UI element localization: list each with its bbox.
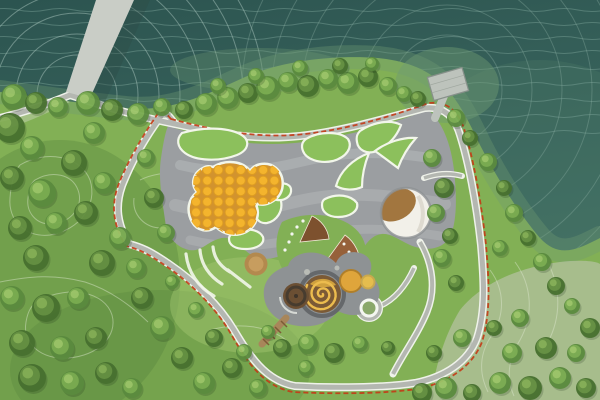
playground-dot: [225, 197, 234, 206]
playground-dot: [203, 176, 212, 185]
playground-dot: [236, 166, 245, 175]
playground-dot: [236, 197, 245, 206]
playground-dot: [259, 187, 268, 196]
playground-dot: [248, 208, 257, 217]
playground-dot: [203, 197, 212, 206]
planting-island: [178, 129, 247, 160]
playground-dot: [214, 208, 223, 217]
playground-dot: [236, 187, 245, 196]
ring-play-circle: [361, 300, 377, 316]
playground-dot: [225, 208, 234, 217]
playground-dot: [248, 176, 257, 185]
playground-dot: [203, 208, 212, 217]
playground-dot: [259, 166, 268, 175]
playground-dot: [236, 176, 245, 185]
playground-dot: [214, 197, 223, 206]
playground-dot: [203, 219, 212, 228]
playground-dot: [236, 219, 245, 228]
playground-dot: [225, 219, 234, 228]
playground-dot: [259, 176, 268, 185]
playground-dot: [248, 197, 257, 206]
play-circle: [340, 270, 362, 292]
playground-dot: [214, 187, 223, 196]
playground-dot: [192, 197, 201, 206]
playground-dot: [225, 166, 234, 175]
small-play-dot: [335, 266, 340, 271]
play-circle: [362, 276, 375, 289]
tan-play-circle-inner: [249, 257, 264, 272]
donut-center: [294, 294, 298, 298]
playground-dot: [270, 176, 279, 185]
playground-dot: [225, 187, 234, 196]
playground-dot: [203, 187, 212, 196]
playground-dot: [214, 219, 223, 228]
site-plan-canvas: [0, 0, 600, 400]
planting-island: [302, 133, 350, 162]
playground-dot: [236, 208, 245, 217]
playground-dot: [225, 176, 234, 185]
small-play-dot: [304, 269, 310, 275]
site-plan-svg: [0, 0, 600, 400]
playground-dot: [248, 187, 257, 196]
playground-dot: [192, 208, 201, 217]
crescent-planting-bed: [322, 196, 357, 217]
playground-dot: [214, 176, 223, 185]
playground-dot: [270, 187, 279, 196]
playground-dot: [214, 166, 223, 175]
